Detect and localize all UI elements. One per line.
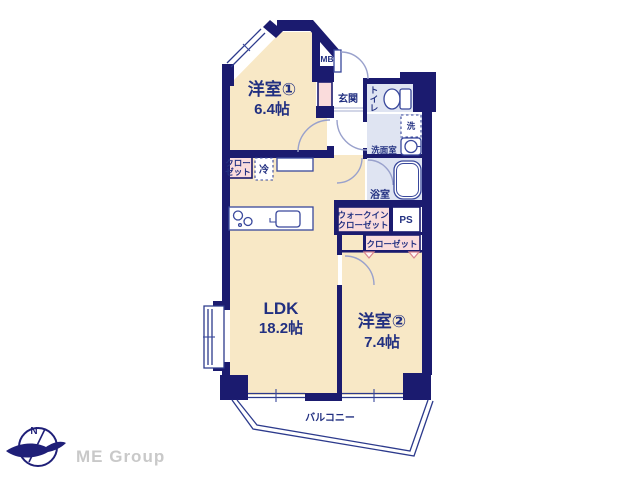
closet-bedroom2-label: クローゼット: [366, 239, 417, 249]
washroom-label: 洗面室: [371, 145, 397, 155]
toilet-label-c3: レ: [370, 103, 379, 113]
washbasin-icon: [401, 138, 421, 155]
balcony-label: バルコニー: [305, 412, 355, 424]
ldk-name: LDK: [264, 299, 300, 318]
kitchen-counter: [229, 207, 313, 230]
washroom-door-arc: [337, 120, 367, 150]
entrance-label: 玄関: [338, 92, 358, 105]
wic-label-line1: ウォークイン: [337, 210, 389, 220]
pipe-space-label: PS: [399, 215, 413, 226]
entrance-shoe-closet: [318, 82, 332, 108]
ldk-size: 18.2帖: [259, 319, 303, 337]
kitchen-upper-counter: [277, 158, 313, 171]
floorplan-drawing: 洋室① 6.4帖 LDK 18.2帖 洋室② 7.4帖 玄関 ト イ レ 洗面室…: [0, 0, 640, 480]
bedroom2-size: 7.4帖: [364, 333, 400, 351]
washer-label: 洗: [407, 121, 416, 131]
company-logo-text: ME Group: [76, 447, 165, 466]
refrigerator-label: 冷: [259, 163, 269, 176]
meter-box-label: MB: [320, 54, 333, 64]
entry-door-leaf: [334, 50, 341, 72]
compass-north-label: N: [30, 426, 37, 437]
toilet-icon: [384, 89, 411, 109]
balcony-outline: [232, 400, 433, 456]
wic-label-line2: クローゼット: [337, 220, 388, 230]
entry-door-arc: [341, 52, 368, 79]
bedroom2-name: 洋室②: [358, 311, 406, 331]
bedroom1-size: 6.4帖: [254, 100, 290, 118]
bathroom-label: 浴室: [370, 188, 390, 201]
floorplan-page: 洋室① 6.4帖 LDK 18.2帖 洋室② 7.4帖 玄関 ト イ レ 洗面室…: [0, 0, 640, 480]
bedroom1-name: 洋室①: [248, 79, 296, 99]
compass: N: [6, 426, 66, 466]
closet-bedroom1-line2: ゼット: [225, 167, 251, 177]
bathtub-icon: [394, 161, 421, 199]
